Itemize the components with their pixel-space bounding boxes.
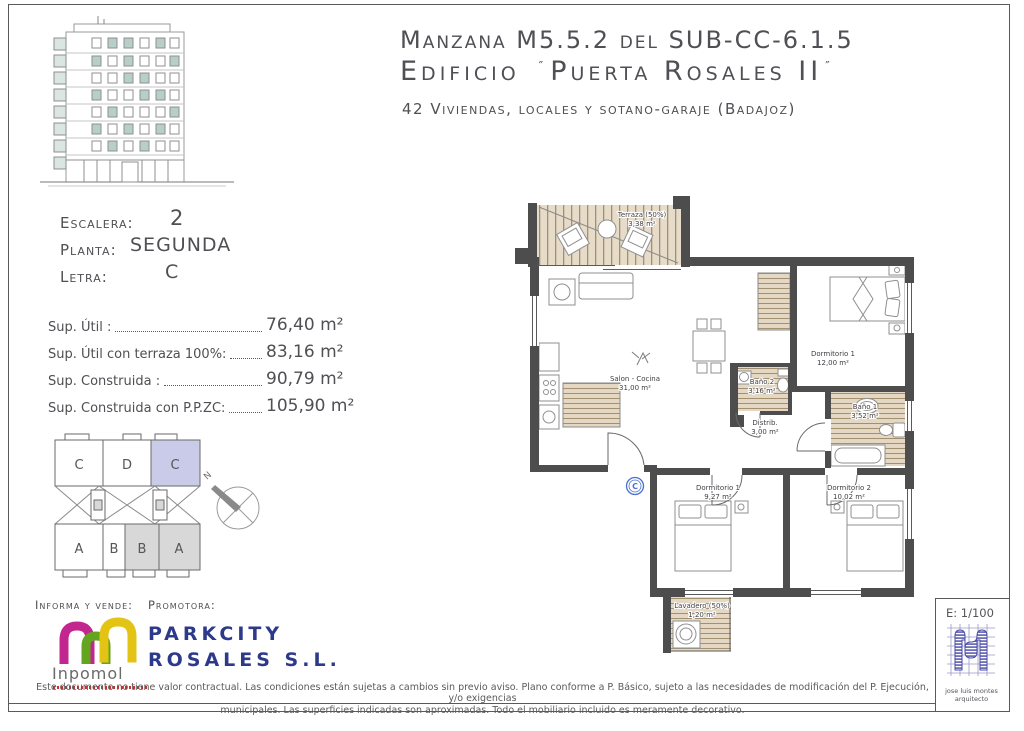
distrib-label: Distrib. bbox=[752, 419, 777, 427]
toilet bbox=[778, 378, 789, 392]
unit-letter-badge: C bbox=[627, 478, 644, 495]
kitchen-counter bbox=[563, 383, 620, 427]
balcony-stack bbox=[54, 38, 66, 169]
toilet-tank bbox=[893, 423, 905, 437]
badge-letter: C bbox=[632, 482, 638, 491]
compass-needle bbox=[211, 485, 241, 512]
surface-row: Sup. Construida con P.P.ZC: 105,90 m² bbox=[48, 389, 358, 416]
fridge bbox=[539, 343, 559, 371]
chair bbox=[711, 319, 721, 329]
surface-row: Sup. Útil con terraza 100%: 83,16 m² bbox=[48, 335, 358, 362]
dot-leader bbox=[164, 385, 262, 386]
dorm3-area: 9,27 m² bbox=[704, 493, 732, 501]
architect-name-line2: arquitecto bbox=[936, 696, 1007, 704]
logo-arch-yellow bbox=[104, 622, 132, 658]
disclaimer: Este documento no tiene valor contractua… bbox=[30, 682, 935, 716]
building-subtitle: 42 Viviendas, locales y sotano-garaje (B… bbox=[402, 100, 796, 118]
surface-label: Sup. Construida : bbox=[48, 374, 160, 389]
surface-value: 105,90 m² bbox=[266, 396, 358, 416]
keyplan-letter: D bbox=[122, 458, 132, 473]
informa-y-vende-label: Informa y vende: bbox=[35, 598, 133, 612]
keyplan-letter: C bbox=[74, 458, 83, 473]
disclaimer-line1: Este documento no tiene valor contractua… bbox=[30, 682, 935, 705]
plan-sheet: Manzana M5.5.2 del SUB-CC-6.1.5 Edificio… bbox=[0, 0, 1024, 731]
letra-label: Letra: bbox=[60, 268, 108, 286]
dorm2-label: Dormitorio 2 bbox=[827, 484, 871, 492]
manzana-title: Manzana M5.5.2 del SUB-CC-6.1.5 bbox=[400, 26, 854, 54]
escalera-value: 2 bbox=[170, 206, 184, 230]
surface-table: Sup. Útil : 76,40 m² Sup. Útil con terra… bbox=[48, 308, 358, 416]
surface-value: 76,40 m² bbox=[266, 315, 358, 335]
distrib-area: 3,00 m² bbox=[751, 428, 779, 436]
chair bbox=[711, 363, 721, 373]
surface-value: 83,16 m² bbox=[266, 342, 358, 362]
inpomol-logo bbox=[52, 614, 148, 664]
surface-label: Sup. Útil : bbox=[48, 320, 111, 335]
bano1-door bbox=[797, 423, 825, 451]
surface-label: Sup. Útil con terraza 100%: bbox=[48, 347, 226, 362]
architect-logo bbox=[947, 624, 995, 684]
elevator-1 bbox=[94, 500, 102, 510]
keyplan-letter: A bbox=[75, 542, 84, 557]
dot-leader bbox=[115, 331, 262, 332]
north-compass: N bbox=[202, 470, 259, 529]
disclaimer-line2: municipales. Las superficies indicadas s… bbox=[30, 705, 935, 716]
surface-label: Sup. Construida con P.P.ZC: bbox=[48, 401, 225, 416]
building-elevation-drawing bbox=[38, 10, 238, 200]
keyplan-letter: A bbox=[175, 542, 184, 557]
dining-table bbox=[693, 331, 725, 361]
bano1-area: 3,52 m² bbox=[851, 412, 879, 420]
surface-value: 90,79 m² bbox=[266, 369, 358, 389]
inpomol-wordmark: Inpomol bbox=[52, 664, 124, 683]
lavadero-area: 1,20 m² bbox=[688, 611, 716, 619]
salon-label: Salon - Cocina bbox=[610, 375, 660, 383]
keyplan-letter: C bbox=[170, 458, 179, 473]
building-name: Puerta Rosales II bbox=[550, 56, 822, 87]
sofa bbox=[579, 273, 633, 299]
floor-plan: Terraza (50%) 3,38 m² Salon - Cocina 31,… bbox=[515, 193, 935, 660]
parkcity-line2: ROSALES S.L. bbox=[148, 648, 341, 674]
north-label: N bbox=[202, 470, 214, 482]
surface-row: Sup. Construida : 90,79 m² bbox=[48, 362, 358, 389]
keyplan-letter: B bbox=[110, 542, 119, 557]
salon-area: 31,00 m² bbox=[619, 384, 651, 392]
entry-door bbox=[608, 433, 644, 465]
room-floors bbox=[537, 205, 905, 651]
key-plan: C D C A B B A N bbox=[35, 428, 275, 583]
open-quote: ″ bbox=[539, 59, 548, 73]
architect-name: jose luis montes arquitecto bbox=[936, 688, 1007, 704]
parkcity-line1: PARKCITY bbox=[148, 622, 341, 648]
planta-value: SEGUNDA bbox=[130, 234, 231, 256]
escalera-label: Escalera: bbox=[60, 214, 134, 232]
bano1-label: Baño 1 bbox=[853, 403, 878, 411]
dorm3-label: Dormitorio 1 bbox=[696, 484, 740, 492]
dorm1-area: 12,00 m² bbox=[817, 359, 849, 367]
scale-label: E: 1/100 bbox=[946, 606, 994, 620]
dorm2-area: 10,02 m² bbox=[833, 493, 865, 501]
lavadero-label: Lavadero (50%) bbox=[674, 602, 730, 610]
dorm1-label: Dormitorio 1 bbox=[811, 350, 855, 358]
closet bbox=[758, 273, 790, 330]
surface-row: Sup. Útil : 76,40 m² bbox=[48, 308, 358, 335]
letra-value: C bbox=[165, 261, 179, 283]
terraza-area: 3,38 m² bbox=[628, 220, 656, 228]
terrace-table bbox=[598, 220, 616, 238]
chair bbox=[697, 319, 707, 329]
keyplan-letter: B bbox=[138, 542, 147, 557]
toilet-tank bbox=[778, 369, 789, 376]
facade-windows bbox=[92, 38, 179, 151]
building-name-title: Edificio″Puerta Rosales II″ bbox=[400, 56, 837, 87]
dot-leader bbox=[230, 358, 262, 359]
dot-leader bbox=[229, 412, 262, 413]
close-quote: ″ bbox=[825, 59, 834, 73]
edificio-label: Edificio bbox=[400, 56, 520, 87]
planta-label: Planta: bbox=[60, 241, 117, 259]
bano2-label: Baño 2 bbox=[750, 378, 775, 386]
plant bbox=[632, 352, 650, 365]
toilet bbox=[880, 425, 893, 436]
parkcity-wordmark: PARKCITY ROSALES S.L. bbox=[148, 622, 341, 673]
elevator-2 bbox=[156, 500, 164, 510]
promotora-label: Promotora: bbox=[148, 598, 216, 612]
terraza-label: Terraza (50%) bbox=[617, 211, 667, 219]
chair bbox=[697, 363, 707, 373]
stove bbox=[539, 375, 559, 401]
bano2-area: 3,16 m² bbox=[748, 387, 776, 395]
